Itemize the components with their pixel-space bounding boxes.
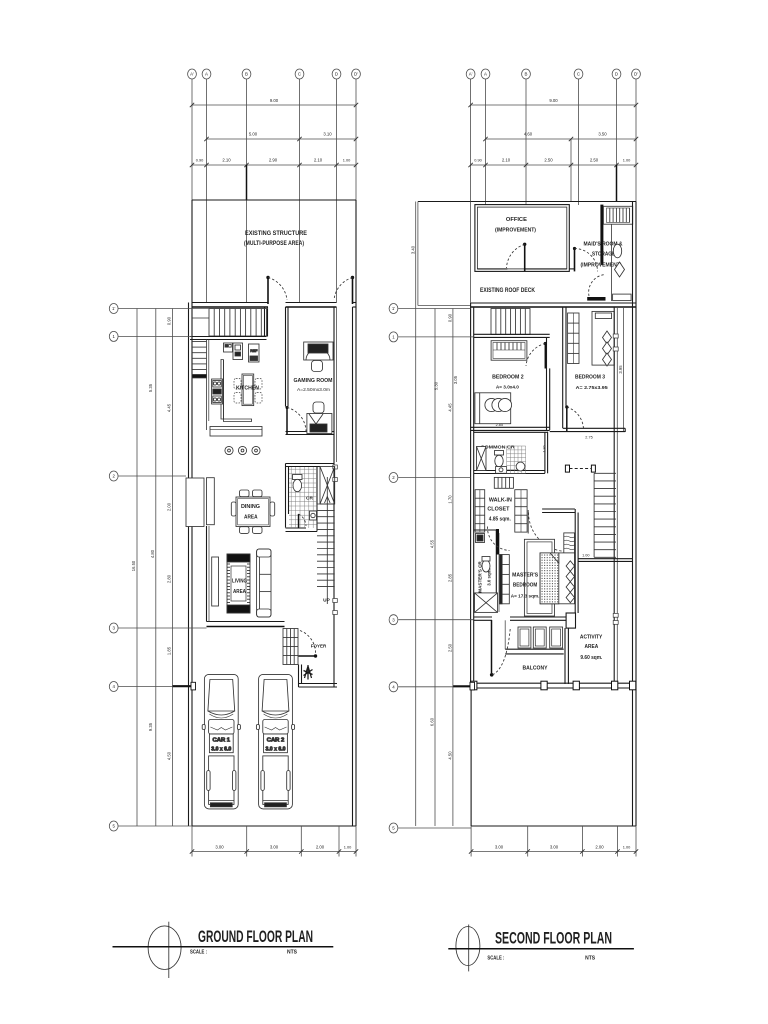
svg-text:(IMPROVEMENT): (IMPROVEMENT): [495, 228, 536, 234]
svg-text:1.00: 1.00: [623, 158, 631, 163]
svg-text:REF: REF: [250, 349, 258, 353]
svg-text:3.10: 3.10: [323, 132, 332, 137]
svg-text:SECOND FLOOR PLAN: SECOND FLOOR PLAN: [495, 930, 612, 948]
svg-text:2.50: 2.50: [544, 158, 553, 163]
svg-text:CR: CR: [306, 496, 313, 502]
svg-text:3.00: 3.00: [495, 845, 504, 850]
svg-text:2.10: 2.10: [222, 158, 231, 163]
svg-text:1': 1': [392, 306, 395, 311]
svg-text:16.50: 16.50: [131, 560, 136, 571]
svg-text:3.0 x 6.0: 3.0 x 6.0: [211, 747, 231, 753]
svg-text:2.00: 2.00: [316, 845, 325, 850]
svg-text:2.90: 2.90: [269, 158, 278, 163]
svg-text:0.90: 0.90: [167, 316, 172, 325]
svg-text:3.00: 3.00: [215, 845, 224, 850]
svg-text:C: C: [577, 72, 580, 77]
svg-text:A': A': [469, 72, 473, 77]
svg-text:C: C: [298, 72, 301, 77]
svg-text:6.60: 6.60: [430, 717, 435, 726]
svg-text:4.50: 4.50: [167, 751, 172, 760]
svg-text:A': A': [190, 72, 194, 77]
svg-text:3.00: 3.00: [270, 845, 279, 850]
svg-text:2.85: 2.85: [496, 423, 503, 427]
svg-text:3.0 x 6.0: 3.0 x 6.0: [266, 747, 286, 753]
svg-text:KITCHEN: KITCHEN: [236, 386, 259, 392]
svg-text:CAR 2: CAR 2: [267, 738, 285, 744]
svg-text:2.00: 2.00: [167, 502, 172, 511]
svg-text:0.90: 0.90: [474, 158, 482, 163]
svg-text:AREA: AREA: [233, 589, 246, 595]
svg-text:2.75: 2.75: [585, 436, 592, 440]
svg-text:4.55: 4.55: [430, 539, 435, 548]
svg-text:MASTER'S: MASTER'S: [512, 573, 539, 579]
svg-text:3.05: 3.05: [453, 375, 458, 384]
svg-text:2.85: 2.85: [448, 573, 453, 582]
svg-text:0.90: 0.90: [448, 313, 453, 322]
svg-text:BEDROOM 3: BEDROOM 3: [575, 375, 605, 381]
svg-text:B: B: [245, 72, 248, 77]
svg-text:5.35: 5.35: [148, 383, 153, 392]
svg-text:1.00: 1.00: [623, 845, 631, 850]
svg-text:1.30: 1.30: [543, 446, 547, 453]
svg-text:EXISTING ROOF DECK: EXISTING ROOF DECK: [480, 288, 536, 294]
svg-text:9.00: 9.00: [270, 98, 279, 103]
svg-text:A= 17.3 sqm.: A= 17.3 sqm.: [511, 594, 540, 600]
svg-text:1.00: 1.00: [343, 158, 351, 163]
svg-text:SCALE :: SCALE :: [190, 950, 207, 956]
svg-text:2.50: 2.50: [448, 643, 453, 652]
svg-text:UP: UP: [323, 598, 330, 604]
svg-text:NTS: NTS: [287, 950, 297, 956]
svg-text:A= 3.0x4.0: A= 3.0x4.0: [496, 385, 519, 391]
svg-text:1.70: 1.70: [448, 495, 453, 504]
svg-text:2.10: 2.10: [502, 158, 511, 163]
svg-text:9.35: 9.35: [148, 722, 153, 731]
svg-text:BEDROOM: BEDROOM: [513, 583, 537, 589]
svg-text:4.50: 4.50: [448, 751, 453, 760]
svg-text:5.30: 5.30: [434, 381, 439, 390]
svg-text:2.00: 2.00: [595, 845, 604, 850]
svg-text:4.45: 4.45: [448, 403, 453, 412]
svg-text:4.45: 4.45: [167, 403, 172, 412]
svg-text:9.00: 9.00: [549, 98, 558, 103]
svg-text:ACTIVITY: ACTIVITY: [580, 635, 603, 641]
svg-text:WALK-IN: WALK-IN: [489, 498, 512, 504]
svg-text:OFFICE: OFFICE: [506, 217, 527, 223]
svg-text:B: B: [525, 72, 528, 77]
svg-text:SCALE :: SCALE :: [487, 956, 504, 962]
svg-text:BALCONY: BALCONY: [523, 666, 549, 672]
svg-text:2.80: 2.80: [167, 574, 172, 583]
svg-text:AREA: AREA: [585, 644, 599, 650]
svg-text:1.00: 1.00: [344, 845, 352, 850]
svg-text:GROUND FLOOR PLAN: GROUND FLOOR PLAN: [198, 928, 313, 946]
svg-text:3.00: 3.00: [550, 845, 559, 850]
svg-text:A=2.50mx3.0m: A=2.50mx3.0m: [297, 387, 330, 392]
svg-text:(MULTI-PURPOSE AREA): (MULTI-PURPOSE AREA): [244, 241, 304, 247]
svg-text:2.50: 2.50: [590, 158, 599, 163]
svg-text:5.00: 5.00: [249, 132, 258, 137]
svg-text:2.10: 2.10: [314, 158, 323, 163]
svg-text:LIVING: LIVING: [232, 579, 247, 585]
svg-text:D': D': [354, 72, 358, 77]
svg-text:3.50: 3.50: [598, 132, 607, 137]
svg-text:EXISTING STRUCTURE: EXISTING STRUCTURE: [245, 231, 307, 237]
svg-text:9.60 sqm.: 9.60 sqm.: [580, 655, 603, 661]
svg-text:A: A: [205, 72, 208, 77]
svg-text:4.85 sqm.: 4.85 sqm.: [489, 517, 512, 523]
svg-text:D': D': [634, 72, 638, 77]
svg-text:A: A: [484, 72, 487, 77]
svg-text:CLOSET: CLOSET: [487, 507, 509, 513]
svg-text:FOYER: FOYER: [311, 644, 327, 650]
svg-text:3.40: 3.40: [410, 245, 415, 254]
svg-text:AREA: AREA: [244, 515, 258, 521]
svg-text:A= 2.75x3.95: A= 2.75x3.95: [576, 385, 608, 391]
svg-text:D: D: [335, 72, 338, 77]
svg-text:3.95: 3.95: [618, 365, 623, 374]
svg-text:CAR 1: CAR 1: [213, 738, 231, 744]
svg-text:4.80: 4.80: [150, 549, 155, 558]
svg-text:0.90: 0.90: [196, 158, 204, 163]
svg-text:BEDROOM 2: BEDROOM 2: [492, 375, 524, 381]
svg-text:NTS: NTS: [585, 956, 595, 962]
svg-text:1': 1': [112, 306, 115, 311]
svg-text:DINING: DINING: [241, 504, 260, 510]
svg-text:1.00: 1.00: [582, 554, 589, 558]
svg-text:4.60: 4.60: [524, 132, 533, 137]
svg-text:1.85: 1.85: [167, 646, 172, 655]
svg-text:GAMING ROOM: GAMING ROOM: [294, 378, 333, 384]
svg-text:D: D: [615, 72, 618, 77]
